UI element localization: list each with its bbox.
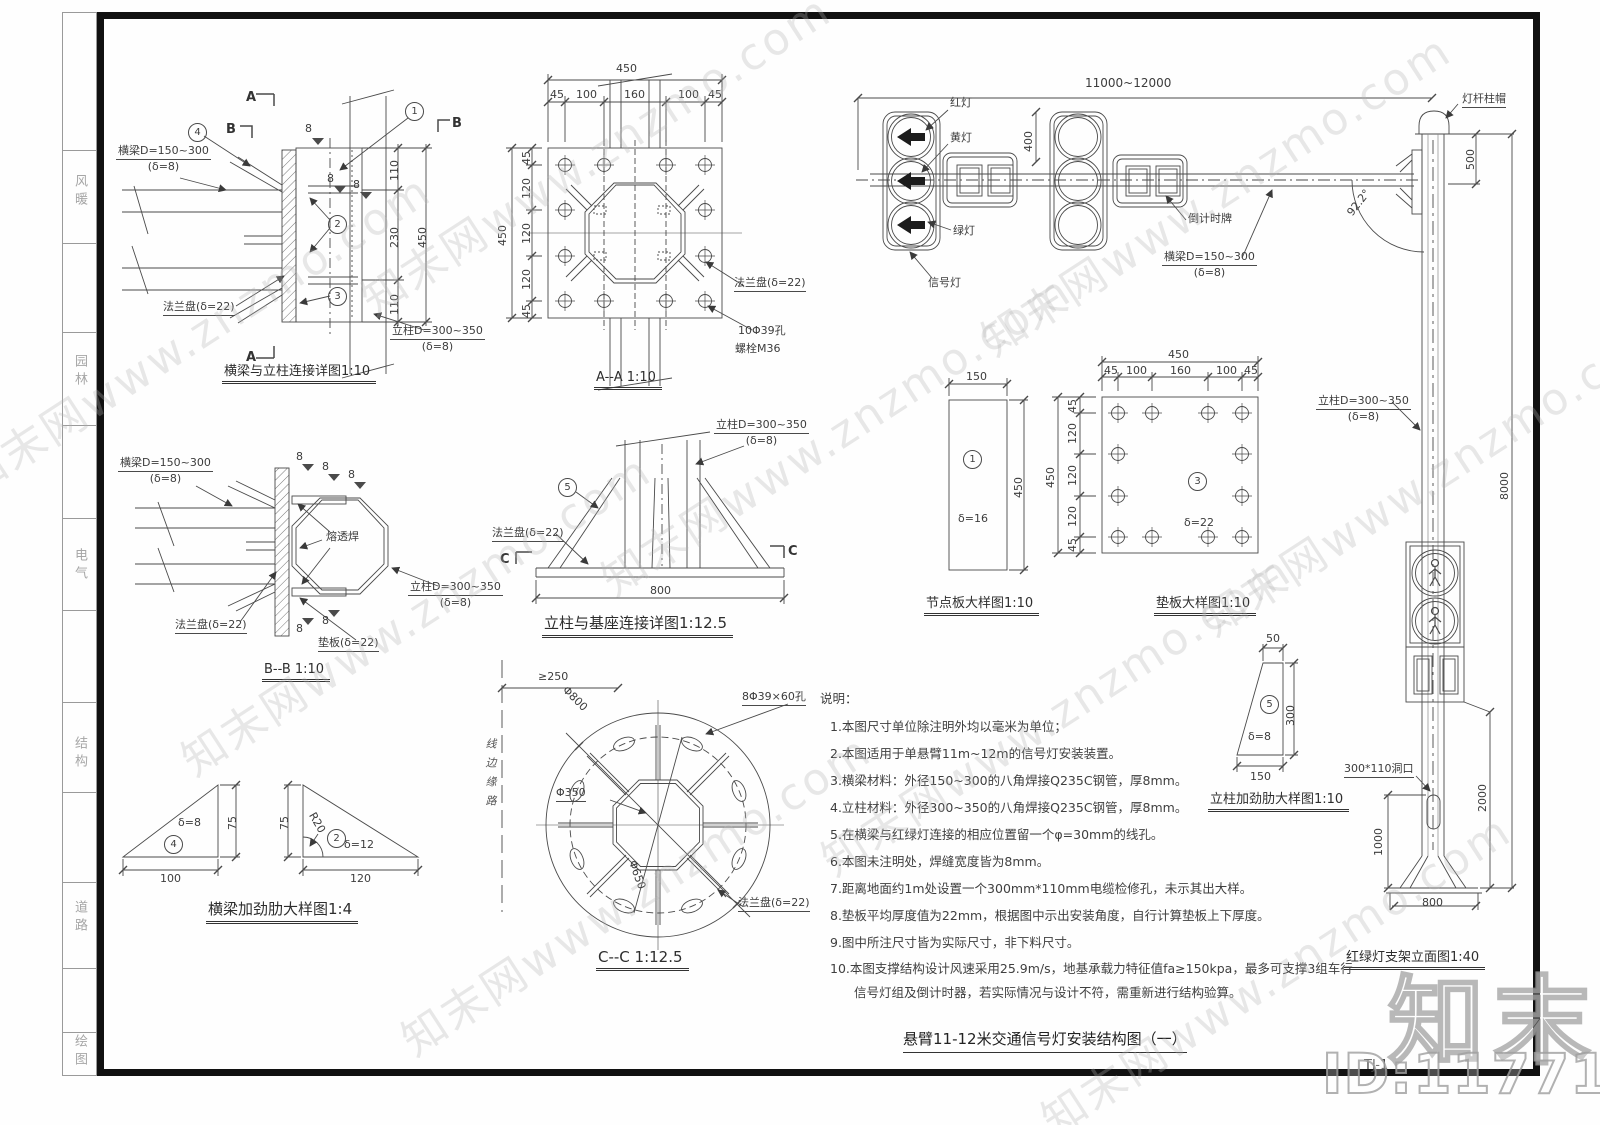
weld-size: 8 bbox=[296, 622, 303, 636]
flange-label: 法兰盘(δ=22) bbox=[738, 896, 810, 912]
dim-label: 500 bbox=[1464, 149, 1478, 170]
dim-label: 45 bbox=[520, 304, 534, 318]
pad-label: 垫板(δ=22) bbox=[318, 636, 379, 652]
detail-bubble: 3 bbox=[328, 287, 347, 306]
dim-label: 120 bbox=[520, 223, 534, 244]
section-mark: C bbox=[500, 552, 510, 567]
detail-bubble: 2 bbox=[328, 215, 347, 234]
beam-size-label: 横梁D=150~300(δ=8) bbox=[1162, 250, 1257, 281]
weld-size: 8 bbox=[322, 614, 329, 628]
note-item: 信号灯组及倒计时器，若实际情况与设计不符，需重新进行结构验算。 bbox=[854, 982, 1242, 1001]
column-size-label: 立柱D=300~350(δ=8) bbox=[408, 580, 503, 611]
section-bb-drawing bbox=[135, 464, 438, 640]
weld-size: 8 bbox=[322, 460, 329, 474]
dim-label: 120 bbox=[1066, 423, 1080, 444]
yellow-light-label: 黄灯 bbox=[950, 131, 972, 145]
flange-label: 法兰盘(δ=22) bbox=[734, 276, 806, 292]
dim-label: 45 bbox=[1066, 399, 1080, 413]
detail-caption: 立柱与基座连接详图1:12.5 bbox=[542, 612, 733, 638]
detail-bubble: 1 bbox=[405, 102, 424, 121]
section-mark: A bbox=[246, 90, 256, 105]
detail-caption: C--C 1:12.5 bbox=[596, 948, 689, 971]
section-mark: B bbox=[452, 116, 462, 131]
id-watermark: ID:1177109355 bbox=[1322, 1042, 1600, 1106]
detail-caption: 垫板大样图1:10 bbox=[1154, 592, 1256, 616]
dim-label: 100 bbox=[678, 88, 699, 102]
detail-bubble: 5 bbox=[558, 478, 577, 497]
detail-bubble: 5 bbox=[1260, 695, 1279, 714]
thickness-label: δ=8 bbox=[178, 816, 201, 830]
dim-label: 150 bbox=[1250, 770, 1271, 784]
dim-label: 45 bbox=[1066, 538, 1080, 552]
dim-label: 450 bbox=[1168, 348, 1189, 362]
flange-label: 法兰盘(δ=22) bbox=[163, 300, 235, 316]
dim-label: 300 bbox=[1284, 705, 1298, 726]
beam-size-label: 横梁D=150~300(δ=8) bbox=[116, 144, 211, 175]
dim-label: 8000 bbox=[1498, 472, 1512, 500]
dim-label: 100 bbox=[576, 88, 597, 102]
section-aa-drawing bbox=[506, 74, 752, 390]
dim-label: 45 bbox=[1104, 364, 1118, 378]
detail-bubble: 1 bbox=[963, 450, 982, 469]
dim-label: 800 bbox=[650, 584, 671, 598]
detail-bubble: 3 bbox=[1188, 472, 1207, 491]
dim-label: 100 bbox=[160, 872, 181, 886]
detail-bubble: 2 bbox=[327, 829, 346, 848]
dim-label: 160 bbox=[1170, 364, 1191, 378]
beam-size-label: 横梁D=150~300(δ=8) bbox=[118, 456, 213, 487]
dim-label: 45 bbox=[520, 151, 534, 165]
column-size-label: 立柱D=300~350(δ=8) bbox=[714, 418, 809, 449]
flange-label: 法兰盘(δ=22) bbox=[492, 526, 564, 542]
dim-label: 450 bbox=[496, 225, 510, 246]
flange-label: 法兰盘(δ=22) bbox=[175, 618, 247, 634]
dia-label: Φ350 bbox=[556, 786, 586, 802]
dim-label: 100 bbox=[1126, 364, 1147, 378]
dim-label: 2000 bbox=[1476, 784, 1490, 812]
note-item: 7.距离地面约1m处设置一个300mm*110mm电缆检修孔，未示其出大样。 bbox=[830, 878, 1252, 897]
sheet-title: 悬臂11-12米交通信号灯安装结构图（一） bbox=[903, 1028, 1187, 1053]
red-light-label: 红灯 bbox=[950, 96, 972, 110]
dim-label: 120 bbox=[350, 872, 371, 886]
note-item: 8.垫板平均厚度值为22mm，根据图中示出安装角度，自行计算垫板上下厚度。 bbox=[830, 905, 1270, 924]
note-item: 6.本图未注明处，焊缝宽度皆为8mm。 bbox=[830, 851, 1049, 870]
dim-label: 400 bbox=[1022, 131, 1036, 152]
note-item: 3.横梁材料：外径150~300的八角焊接Q235C钢管，厚8mm。 bbox=[830, 770, 1187, 789]
column-size-label: 立柱D=300~350(δ=8) bbox=[390, 324, 485, 355]
column-base-connection-drawing bbox=[516, 432, 788, 604]
weld-size: 8 bbox=[305, 122, 312, 136]
dim-label: 50 bbox=[1266, 632, 1280, 646]
dim-label: 120 bbox=[1066, 465, 1080, 486]
dim-label: 160 bbox=[624, 88, 645, 102]
detail-caption: 节点板大样图1:10 bbox=[924, 592, 1039, 616]
slot-holes-label: 8Φ39×60孔 bbox=[742, 690, 806, 706]
detail-caption: 横梁与立柱连接详图1:10 bbox=[222, 360, 376, 384]
dim-label: 45 bbox=[1244, 364, 1258, 378]
thickness-label: δ=22 bbox=[1184, 516, 1214, 530]
dim-label: 75 bbox=[226, 816, 240, 830]
dim-label: 120 bbox=[520, 269, 534, 290]
weld-size: 8 bbox=[353, 178, 360, 192]
detail-bubble: 4 bbox=[188, 123, 207, 142]
column-size-label: 立柱D=300~350(δ=8) bbox=[1316, 394, 1411, 425]
note-item: 1.本图尺寸单位除注明外均以毫米为单位； bbox=[830, 716, 1067, 735]
dim-label: 800 bbox=[1422, 896, 1443, 910]
dim-label: 1000 bbox=[1372, 828, 1386, 856]
section-mark: B bbox=[226, 122, 236, 137]
access-hole-label: 300*110洞口 bbox=[1344, 762, 1414, 778]
pole-elevation-drawing bbox=[1352, 104, 1516, 910]
detail-caption: A--A 1:10 bbox=[594, 370, 662, 390]
dim-label: 150 bbox=[966, 370, 987, 384]
green-light-label: 绿灯 bbox=[953, 224, 975, 238]
detail-caption: 横梁加劲肋大样图1:4 bbox=[206, 898, 358, 924]
beam-elevation-drawing bbox=[854, 94, 1436, 278]
signal-light-label: 信号灯 bbox=[928, 276, 961, 290]
detail-caption: 立柱加劲肋大样图1:10 bbox=[1208, 788, 1349, 812]
shim-plate-drawing bbox=[1052, 356, 1262, 557]
pole-cap-label: 灯杆柱帽 bbox=[1462, 92, 1506, 108]
thickness-label: δ=12 bbox=[344, 838, 374, 852]
dim-label: 120 bbox=[1066, 506, 1080, 527]
bolt-hole-label: 10Φ39孔 bbox=[738, 324, 786, 338]
dim-label: 450 bbox=[616, 62, 637, 76]
note-item: 9.图中所注尺寸皆为实际尺寸，非下料尺寸。 bbox=[830, 932, 1079, 951]
note-item: 4.立柱材料：外径300~350的八角焊接Q235C钢管，厚8mm。 bbox=[830, 797, 1187, 816]
weld-size: 8 bbox=[327, 172, 334, 186]
dim-label: 450 bbox=[416, 227, 430, 248]
dim-label: 450 bbox=[1044, 467, 1058, 488]
thickness-label: δ=8 bbox=[1248, 730, 1271, 744]
note-item: 2.本图适用于单悬臂11m~12m的信号灯安装装置。 bbox=[830, 743, 1121, 762]
node-plate-drawing bbox=[945, 378, 1028, 574]
span-dim-label: 11000~12000 bbox=[1085, 76, 1171, 91]
dim-label: 75 bbox=[278, 816, 292, 830]
detail-bubble: 4 bbox=[164, 835, 183, 854]
weld-size: 8 bbox=[348, 468, 355, 482]
dim-label: 450 bbox=[1012, 477, 1026, 498]
dim-label: 100 bbox=[1216, 364, 1237, 378]
offset-dim-label: ≥250 bbox=[538, 670, 568, 684]
beam-stiffener-drawing bbox=[119, 781, 422, 876]
dim-label: 120 bbox=[520, 178, 534, 199]
notes-title: 说明： bbox=[820, 688, 858, 707]
countdown-label: 倒计时牌 bbox=[1188, 212, 1232, 226]
note-item: 5.在横梁与红绿灯连接的相应位置留一个φ=30mm的线孔。 bbox=[830, 824, 1163, 843]
thickness-label: δ=16 bbox=[958, 512, 988, 526]
bolt-label: 螺栓M36 bbox=[735, 342, 781, 356]
dim-label: 110 bbox=[388, 294, 402, 315]
note-item: 10.本图支撑结构设计风速采用25.9m/s，地基承载力特征值fa≥150kpa… bbox=[830, 958, 1353, 977]
full-weld-label: 熔透焊 bbox=[326, 530, 359, 544]
section-mark: C bbox=[788, 544, 798, 559]
cad-sheet: 风暖 园林 电气 结构 道路 绘图 bbox=[0, 0, 1600, 1125]
detail-caption: B--B 1:10 bbox=[262, 662, 330, 682]
dim-label: 110 bbox=[388, 160, 402, 181]
dim-label: 45 bbox=[550, 88, 564, 102]
curb-line-label: 线边缘路 bbox=[482, 738, 498, 814]
dim-label: 45 bbox=[708, 88, 722, 102]
dim-label: 230 bbox=[388, 227, 402, 248]
weld-size: 8 bbox=[296, 450, 303, 464]
